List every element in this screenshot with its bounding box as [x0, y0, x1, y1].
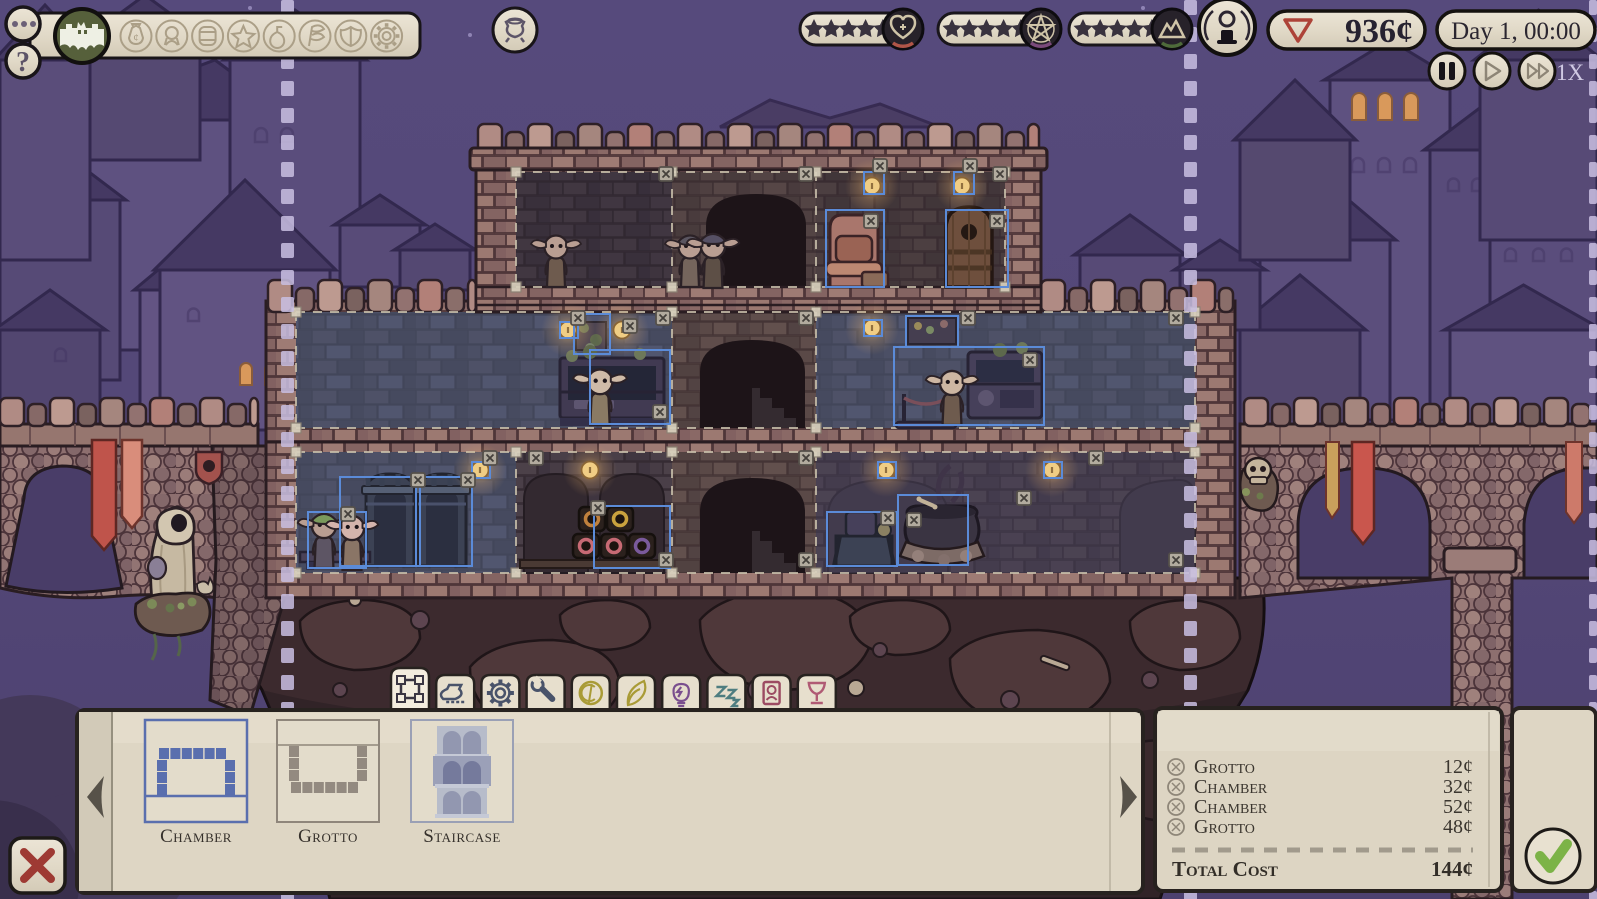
svg-text:?: ? — [16, 47, 30, 78]
svg-text:12¢: 12¢ — [1443, 756, 1473, 778]
svg-text:¢: ¢ — [133, 32, 139, 44]
svg-text:936¢: 936¢ — [1345, 13, 1413, 50]
svg-text:Grotto: Grotto — [298, 826, 358, 847]
svg-text:Staircase: Staircase — [423, 826, 501, 847]
svg-text:48¢: 48¢ — [1443, 816, 1473, 838]
svg-text:52¢: 52¢ — [1443, 796, 1473, 818]
svg-text:Chamber: Chamber — [160, 826, 232, 847]
svg-text:144¢: 144¢ — [1431, 857, 1473, 881]
svg-text:Grotto: Grotto — [1194, 756, 1255, 778]
svg-text:1X: 1X — [1556, 60, 1585, 85]
svg-text:32¢: 32¢ — [1443, 776, 1473, 798]
svg-text:Day 1, 00:00: Day 1, 00:00 — [1451, 18, 1581, 45]
svg-text:Total Cost: Total Cost — [1172, 857, 1278, 881]
svg-text:Chamber: Chamber — [1194, 776, 1268, 798]
svg-text:Chamber: Chamber — [1194, 796, 1268, 818]
svg-text:Grotto: Grotto — [1194, 816, 1255, 838]
